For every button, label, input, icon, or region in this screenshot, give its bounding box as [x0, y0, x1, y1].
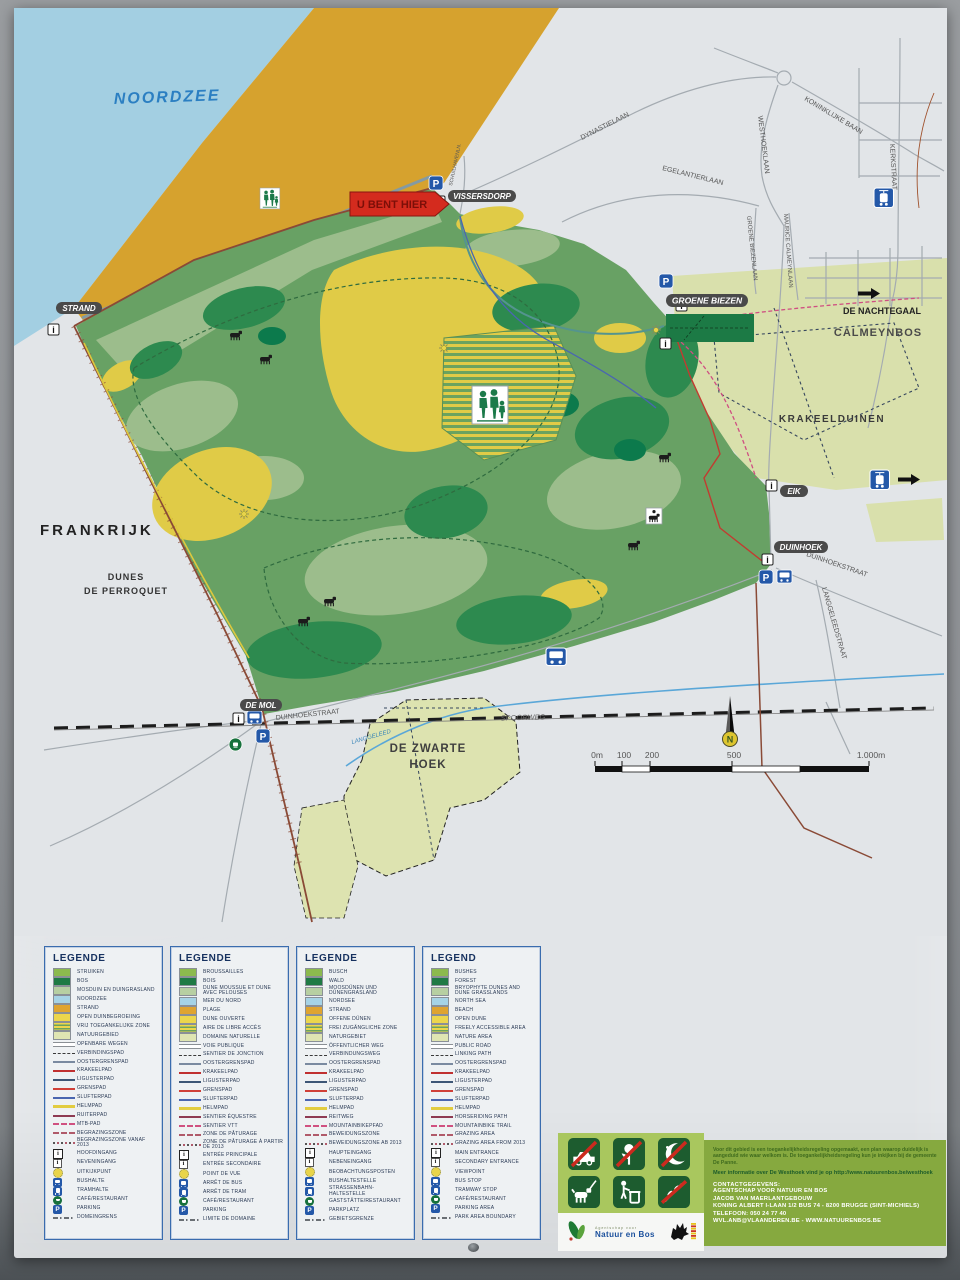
legend-symbol: [431, 968, 449, 977]
legend-label: HELMPAD: [455, 1106, 480, 1111]
legend-symbol: [179, 1160, 188, 1169]
legend-title: LEGENDE: [179, 953, 284, 964]
legend-symbol: [431, 1158, 440, 1167]
info-icon: [233, 713, 244, 724]
legend-symbol: [53, 1053, 75, 1054]
family-icon-large: [472, 386, 508, 424]
legend-row: LIGUSTERPAD: [429, 1077, 536, 1086]
legend-label: KRAKEELPAD: [455, 1070, 490, 1075]
legend-row: BEGRAZINGSZONE VANAF 2013: [51, 1138, 158, 1149]
legend-symbol: [431, 1186, 440, 1195]
bus-icon: [247, 711, 262, 724]
groene-biezen-entrance-zone: [666, 314, 754, 342]
legend-label: NEBENEINGANG: [329, 1160, 372, 1165]
legend-label: PLAGE: [203, 1008, 221, 1013]
viewpoint-icon: [439, 343, 449, 353]
legend-symbol: [305, 1143, 327, 1145]
legend-label: BEGRAZINGSZONE: [77, 1131, 126, 1136]
legend-label: ÖFFENTLICHER WEG: [329, 1044, 384, 1049]
legend-panel-dutch: LEGENDE STRUIKEN BOS MOSDUIN EN DUINGRAS…: [44, 946, 163, 1240]
zwarte-hoek-label-2: HOEK: [409, 759, 446, 771]
legend-label: ZONE DE PÂTURAGE: [203, 1132, 257, 1137]
legend-label: KRAKEELPAD: [77, 1068, 112, 1073]
calmeynbos-label: CALMEYNBOS: [834, 327, 922, 339]
legend-label: NATURE AREA: [455, 1035, 492, 1040]
legend-label: BROUSSAILLES: [203, 970, 243, 975]
legend-row: FREI ZUGÄNGLICHE ZONE: [303, 1024, 410, 1033]
legend-label: ENTRÉE SECONDAIRE: [203, 1162, 261, 1167]
parking-icon: [659, 274, 673, 288]
legend-row: RUITERPAD: [51, 1111, 158, 1120]
legend-row: LIGUSTERPAD: [177, 1077, 284, 1086]
legend-label: OOSTERGRENSPAD: [203, 1061, 255, 1066]
legend-label: OOSTERGRENSPAD: [329, 1061, 381, 1066]
legend-label: GRAZING AREA: [455, 1132, 495, 1137]
legend-label: DOMEINGRENS: [77, 1215, 117, 1220]
legend-label: KRAKEELPAD: [329, 1070, 364, 1075]
legend-label: OPEN DUNE: [455, 1017, 487, 1022]
legend-label: STRAND: [77, 1006, 99, 1011]
legend-symbol: [305, 1090, 327, 1092]
legend-symbol: [179, 977, 197, 986]
legend-label: MOSDUIN EN DUINGRASLAND: [77, 988, 155, 993]
legend-label: BEWEIDUNGSZONE AB 2013: [329, 1141, 402, 1146]
legend-symbol: [305, 1099, 327, 1101]
info-icon: [660, 338, 671, 349]
legend-row: ARRÊT DE TRAM: [177, 1188, 284, 1197]
rules-pictogram-panel: [558, 1133, 704, 1213]
legend-symbol: [431, 1063, 453, 1065]
legend-symbol: [179, 1099, 201, 1101]
legend-symbol: [431, 1090, 453, 1092]
duinhoek-badge: DUINHOEK: [774, 541, 828, 553]
legend-symbol: [179, 1063, 201, 1065]
legend-symbol: [179, 997, 197, 1006]
legend-label: SLUFTERPAD: [329, 1097, 364, 1102]
legend-symbol: [53, 1159, 62, 1168]
svg-text:VISSERSDORP: VISSERSDORP: [453, 192, 511, 201]
legend-row: VRIJ TOEGANKELIJKE ZONE: [51, 1022, 158, 1031]
legend-row: KRAKEELPAD: [303, 1068, 410, 1077]
legend-label: VOIE PUBLIQUE: [203, 1044, 244, 1049]
info-icon: [762, 554, 773, 565]
legend-label: MOOSDÜNEN UND DÜNENGRASLAND: [329, 986, 410, 997]
viewpoint-icon: [651, 325, 661, 335]
legend-symbol: [179, 1044, 201, 1049]
legend-symbol: [305, 1044, 327, 1049]
legend-symbol: [53, 986, 71, 995]
legend-row: ZONE DE PÂTURAGE À PARTIR DE 2013: [177, 1140, 284, 1151]
krakeelduinen-label: KRAKEELDUINEN: [779, 414, 885, 425]
legend-row: MOSDUIN EN DUINGRASLAND: [51, 986, 158, 995]
contact-info-box: Voor dit gebied is een toegankelijkheids…: [704, 1140, 946, 1246]
legend-panel-french: LEGENDE BROUSSAILLES BOIS DUNE MOUSSUE E…: [170, 946, 289, 1240]
legend-row: AIRE DE LIBRE ACCÈS: [177, 1024, 284, 1033]
legend-row: NEBENEINGANG: [303, 1158, 410, 1167]
dunes-label-2: DE PERROQUET: [84, 586, 168, 596]
legend-row: SENTIER ÉQUESTRE: [177, 1113, 284, 1122]
use-litter-bin-icon: [609, 1176, 649, 1208]
legend-symbol: [431, 1134, 453, 1136]
legend-symbol: [305, 1015, 323, 1024]
legend-row: ENTRÉE PRINCIPALE: [177, 1150, 284, 1160]
legend-label: LIMITE DE DOMAINE: [203, 1217, 256, 1222]
legend-symbol: [179, 1116, 201, 1118]
legend-symbol: [431, 1107, 453, 1109]
legend-label: DOMAINE NATURELLE: [203, 1035, 260, 1040]
legend-symbol: [179, 1188, 188, 1197]
legend-symbol: [53, 1123, 75, 1125]
legend-label: BOS: [77, 979, 88, 984]
legend-symbol: [431, 1072, 453, 1074]
legend-row: SLUFTERPAD: [303, 1095, 410, 1104]
legend-label: SLUFTERPAD: [77, 1095, 112, 1100]
legend-symbol: [179, 1197, 188, 1206]
legend-row: NATUURGEBIED: [51, 1031, 158, 1040]
legend-symbol: [431, 1081, 453, 1083]
legend-label: FREELY ACCESSIBLE AREA: [455, 1026, 526, 1031]
legend-label: ENTRÉE PRINCIPALE: [203, 1153, 257, 1158]
bus-icon: [777, 570, 792, 583]
legend-label: ARRÊT DE BUS: [203, 1181, 242, 1186]
legend-row: SECONDARY ENTRANCE: [429, 1158, 536, 1167]
legend-symbol: [431, 1177, 440, 1186]
legend-label: FREI ZUGÄNGLICHE ZONE: [329, 1026, 397, 1031]
contact-line: TELEFOON: 050 24 77 40: [713, 1211, 937, 1219]
legend-row: LIGUSTERPAD: [303, 1077, 410, 1086]
legend-label: GRENSPAD: [203, 1088, 232, 1093]
legend-row: BEWEIDUNGSZONE: [303, 1131, 410, 1140]
legend-row: BRYOPHYTE DUNES AND DUNE GRASSLANDS: [429, 986, 536, 997]
legend-row: OFFENE DÜNEN: [303, 1015, 410, 1024]
agency-logo-strip: Agentschap voor Natuur en Bos: [558, 1213, 704, 1251]
legend-row: HORSERIDING PATH: [429, 1113, 536, 1122]
viewpoint-icon: [239, 509, 249, 519]
legend-symbol: [305, 977, 323, 986]
legend-symbol: [431, 1217, 453, 1219]
legend-row: GRAZING AREA: [429, 1131, 536, 1140]
legend-label: BOIS: [203, 979, 216, 984]
parking-icon: [429, 176, 443, 190]
legend-row: PARK AREA BOUNDARY: [429, 1213, 536, 1222]
legend-row: VERBINDINGSPAD: [51, 1049, 158, 1058]
legend-row: PUBLIC ROAD: [429, 1042, 536, 1051]
legend-row: GRENSPAD: [429, 1086, 536, 1095]
legend-panel-german: LEGENDE BUSCH WALD MOOSDÜNEN UND DÜNENGR…: [296, 946, 415, 1240]
more-info-text: Meer informatie over De Westhoek vind je…: [713, 1170, 937, 1177]
information-board: P i: [14, 8, 947, 1258]
legend-symbol: [53, 995, 71, 1004]
legend-label: DUNE OUVERTE: [203, 1017, 245, 1022]
legend-row: HOOFDINGANG: [51, 1149, 158, 1159]
legend-label: NATUURGEBIED: [77, 1033, 119, 1038]
legend-row: MAIN ENTRANCE: [429, 1148, 536, 1158]
legend-label: PARKING: [77, 1206, 101, 1211]
legend-row: UITKIJKPUNT: [51, 1168, 158, 1178]
legend-row: MOUNTAINBIKE TRAIL: [429, 1122, 536, 1131]
contact-line: AGENTSCHAP VOOR NATUUR EN BOS: [713, 1188, 937, 1196]
groene-biezen-badge: GROENE BIEZEN: [666, 294, 748, 307]
legend-symbol: [305, 1167, 315, 1177]
legend-label: BEWEIDUNGSZONE: [329, 1132, 380, 1137]
legend-strip: LEGENDE STRUIKEN BOS MOSDUIN EN DUINGRAS…: [44, 946, 541, 1240]
legend-symbol: [179, 1150, 189, 1160]
legend-row: CAFÉ/RESTAURANT: [177, 1197, 284, 1206]
legend-symbol: [305, 1024, 323, 1033]
legend-label: MOUNTAINBIKE TRAIL: [455, 1124, 512, 1129]
svg-text:0m: 0m: [591, 750, 603, 760]
legend-row: BEACH: [429, 1006, 536, 1015]
contact-line: KONING ALBERT I-LAAN 1/2 BUS 74 - 8200 B…: [713, 1203, 937, 1211]
no-flower-picking-icon: [609, 1138, 649, 1170]
contact-lines: AGENTSCHAP VOOR NATUUR EN BOSJACOB VAN M…: [713, 1188, 937, 1226]
legend-row: SLUFTERPAD: [429, 1095, 536, 1104]
svg-text:DE MOL: DE MOL: [245, 701, 276, 710]
legend-label: WALD: [329, 979, 344, 984]
legend-label: ARRÊT DE TRAM: [203, 1190, 246, 1195]
legend-symbol: [305, 968, 323, 977]
legend-row: CAFÉ/RESTAURANT: [429, 1195, 536, 1204]
flanders-lion-logo: [668, 1220, 698, 1244]
legend-symbol: [179, 1206, 188, 1215]
legend-symbol: [53, 1070, 75, 1072]
you-are-here-badge: U BENT HIER: [350, 192, 449, 216]
legend-label: NEVENINGANG: [77, 1160, 116, 1165]
legend-label: NATURGEBIET: [329, 1035, 366, 1040]
legend-label: KRAKEELPAD: [203, 1070, 238, 1075]
legend-row: TRAMHALTE: [51, 1187, 158, 1196]
legend-label: NOORDZEE: [77, 997, 107, 1002]
legend-symbol: [431, 1195, 440, 1204]
legend-row: PARKING: [177, 1206, 284, 1215]
strand-badge: STRAND: [56, 302, 102, 314]
legend-row: STRASSENBAHN-HALTESTELLE: [303, 1186, 410, 1197]
legend-label: BUS STOP: [455, 1179, 482, 1184]
legend-row: KRAKEELPAD: [177, 1068, 284, 1077]
logo-title: Natuur en Bos: [595, 1230, 655, 1239]
legend-symbol: [53, 1205, 62, 1214]
legend-symbol: [305, 1063, 327, 1065]
legend-symbol: [53, 1088, 75, 1090]
natuur-en-bos-leaf-logo: [564, 1218, 590, 1246]
legend-symbol: [305, 1006, 323, 1015]
legend-label: SLUFTERPAD: [455, 1097, 490, 1102]
svg-text:STRAND: STRAND: [62, 304, 96, 313]
legend-symbol: [53, 1061, 75, 1063]
legend-title: LEGEND: [431, 953, 536, 964]
legend-symbol: [179, 1125, 201, 1127]
legend-label: GRAZING AREA FROM 2013: [455, 1141, 525, 1146]
legend-label: TRAMWAY STOP: [455, 1188, 497, 1193]
legend-label: OOSTERGRENSPAD: [455, 1061, 507, 1066]
legend-symbol: [179, 1033, 197, 1042]
legend-row: NORDSEE: [303, 997, 410, 1006]
legend-symbol: [431, 977, 449, 986]
legend-row: NATURE AREA: [429, 1033, 536, 1042]
legend-symbol: [431, 1125, 453, 1127]
legend-row: DUNE MOUSSUE ET DUNE AVEC PELOUSES: [177, 986, 284, 997]
legend-row: BUSHES: [429, 968, 536, 977]
legend-row: ÖFFENTLICHER WEG: [303, 1042, 410, 1051]
legend-symbol: [179, 1081, 201, 1083]
de-mol-badge: DE MOL: [240, 699, 282, 711]
legend-row: ARRÊT DE BUS: [177, 1179, 284, 1188]
cafe-icon: [229, 738, 242, 751]
legend-label: ZONE DE PÂTURAGE À PARTIR DE 2013: [203, 1140, 284, 1151]
legend-label: BUSHALTE: [77, 1179, 105, 1184]
family-icon-beach: [260, 188, 280, 209]
legend-label: GRENSPAD: [455, 1088, 484, 1093]
legend-row: NOORDZEE: [51, 995, 158, 1004]
legend-symbol: [179, 1024, 197, 1033]
legend-symbol: [305, 1158, 314, 1167]
svg-text:1.000m: 1.000m: [857, 750, 885, 760]
legend-symbol: [53, 1031, 71, 1040]
legend-row: KRAKEELPAD: [429, 1068, 536, 1077]
legend-row: MOUNTAINBIKEPFAD: [303, 1122, 410, 1131]
bus-icon: [546, 648, 566, 666]
legend-symbol: [179, 1219, 201, 1221]
legend-symbol: [431, 1143, 453, 1145]
legend-symbol: [179, 1006, 197, 1015]
legend-row: CAFÉ/RESTAURANT: [51, 1196, 158, 1205]
svg-text:200: 200: [645, 750, 659, 760]
legend-row: PLAGE: [177, 1006, 284, 1015]
legend-row: GRENSPAD: [177, 1086, 284, 1095]
legend-row: MTB-PAD: [51, 1120, 158, 1129]
parking-icon: [256, 729, 270, 743]
legend-row: OPEN DUNE: [429, 1015, 536, 1024]
legend-label: PARKING AREA: [455, 1206, 494, 1211]
legend-row: HELMPAD: [303, 1104, 410, 1113]
legend-symbol: [305, 1081, 327, 1083]
legend-label: MTB-PAD: [77, 1122, 101, 1127]
tram-icon: [874, 188, 894, 208]
legend-label: GRENSPAD: [329, 1088, 358, 1093]
legend-row: OOSTERGRENSPAD: [303, 1060, 410, 1069]
legend-row: KRAKEELPAD: [51, 1067, 158, 1076]
legend-symbol: [53, 1132, 75, 1134]
contact-line: WVL.ANB@VLAANDEREN.BE - WWW.NATUURENBOS.…: [713, 1218, 937, 1226]
legend-label: SENTIER VTT: [203, 1124, 238, 1129]
no-motor-vehicles-icon: [564, 1138, 604, 1170]
legend-label: BUSHALTESTELLE: [329, 1179, 376, 1184]
legend-label: OFFENE DÜNEN: [329, 1017, 371, 1022]
legend-row: POINT DE VUE: [177, 1169, 284, 1179]
legend-label: BEOBACHTUNGSPOSTEN: [329, 1170, 395, 1175]
legend-label: BRYOPHYTE DUNES AND DUNE GRASSLANDS: [455, 986, 536, 997]
mounting-bolt: [468, 1243, 479, 1252]
legend-symbol: [305, 1116, 327, 1118]
legend-symbol: [305, 1055, 327, 1056]
legend-row: DOMEINGRENS: [51, 1214, 158, 1223]
legend-row: HELMPAD: [51, 1102, 158, 1111]
legend-row: STRUIKEN: [51, 968, 158, 977]
legend-symbol: [431, 1116, 453, 1118]
legend-row: OOSTERGRENSPAD: [429, 1060, 536, 1069]
legend-row: STRAND: [303, 1006, 410, 1015]
legend-label: SLUFTERPAD: [203, 1097, 238, 1102]
legend-symbol: [305, 987, 323, 996]
legend-symbol: [431, 987, 449, 996]
legend-row: GEBIETSGRENZE: [303, 1215, 410, 1224]
legend-label: HELMPAD: [329, 1106, 354, 1111]
legend-symbol: [179, 987, 197, 996]
legend-row: OPENBARE WEGEN: [51, 1040, 158, 1049]
spoorweg-label: SPOORWEG: [500, 712, 545, 722]
legend-label: MAIN ENTRANCE: [455, 1151, 499, 1156]
legend-row: MOOSDÜNEN UND DÜNENGRASLAND: [303, 986, 410, 997]
legend-row: SENTIER DE JONCTION: [177, 1051, 284, 1060]
legend-row: STRAND: [51, 1004, 158, 1013]
legend-symbol: [305, 1177, 314, 1186]
legend-label: SENTIER ÉQUESTRE: [203, 1115, 257, 1120]
legend-label: BUSHES: [455, 970, 477, 975]
legend-symbol: [179, 1169, 189, 1179]
legend-row: NEVENINGANG: [51, 1159, 158, 1168]
parking-icon: [759, 570, 773, 584]
legend-label: HELMPAD: [203, 1106, 228, 1111]
svg-text:GROENE BIEZEN: GROENE BIEZEN: [672, 296, 743, 306]
legend-row: PARKPLATZ: [303, 1206, 410, 1215]
legend-row: BUSHALTE: [51, 1178, 158, 1187]
legend-row: SLUFTERPAD: [51, 1093, 158, 1102]
legend-row: HELMPAD: [429, 1104, 536, 1113]
contact-line: JACOB VAN MAERLANTGEBOUW: [713, 1196, 937, 1204]
legend-symbol: [53, 1013, 71, 1022]
legend-label: HORSERIDING PATH: [455, 1115, 507, 1120]
dog-on-leash-icon: [564, 1176, 604, 1208]
legend-row: HELMPAD: [177, 1104, 284, 1113]
legend-label: MOUNTAINBIKEPFAD: [329, 1124, 383, 1129]
legend-label: CAFÉ/RESTAURANT: [203, 1199, 254, 1204]
legend-row: OOSTERGRENSPAD: [51, 1058, 158, 1067]
legend-symbol: [305, 997, 323, 1006]
legend-row: GASTSTÄTTE/RESTAURANT: [303, 1197, 410, 1206]
legend-label: HOOFDINGANG: [77, 1151, 117, 1156]
legend-label: BEACH: [455, 1008, 473, 1013]
svg-text:500: 500: [727, 750, 741, 760]
legend-symbol: [431, 997, 449, 1006]
dunes-label-1: DUNES: [108, 572, 145, 582]
legend-row: LINKING PATH: [429, 1051, 536, 1060]
svg-text:U BENT HIER: U BENT HIER: [357, 199, 427, 211]
legend-row: NATURGEBIET: [303, 1033, 410, 1042]
legend-label: DUNE MOUSSUE ET DUNE AVEC PELOUSES: [203, 986, 284, 997]
legend-row: VIEWPOINT: [429, 1167, 536, 1177]
legend-row: NORTH SEA: [429, 997, 536, 1006]
info-icon: [766, 480, 777, 491]
legend-symbol: [53, 1097, 75, 1099]
legend-label: PARKING: [203, 1208, 227, 1213]
legend-label: POINT DE VUE: [203, 1172, 241, 1177]
legend-symbol: [179, 1144, 201, 1146]
legend-label: CAFÉ/RESTAURANT: [455, 1197, 506, 1202]
legend-row: TRAMWAY STOP: [429, 1186, 536, 1195]
legend-symbol: [431, 1055, 453, 1056]
legend-symbol: [305, 1219, 327, 1221]
legend-symbol: [179, 968, 197, 977]
legend-label: VERBINDINGSPAD: [77, 1051, 124, 1056]
legend-label: NORTH SEA: [455, 999, 486, 1004]
legend-label: SENTIER DE JONCTION: [203, 1052, 264, 1057]
legend-symbol: [431, 1099, 453, 1101]
horse-rider-icon: [646, 508, 662, 524]
legend-label: LIGUSTERPAD: [329, 1079, 366, 1084]
legend-row: DOMAINE NATURELLE: [177, 1033, 284, 1042]
legend-row: VOIE PUBLIQUE: [177, 1042, 284, 1051]
legend-label: HAUPTEINGANG: [329, 1151, 371, 1156]
